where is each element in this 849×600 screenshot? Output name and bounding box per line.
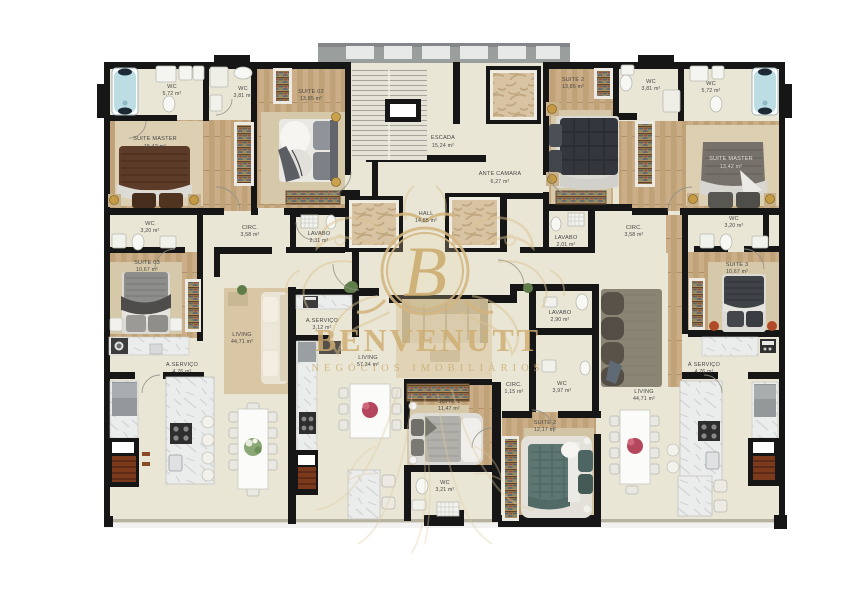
svg-text:NEGÓCIOS IMOBILIÁRIOS: NEGÓCIOS IMOBILIÁRIOS: [311, 362, 544, 374]
svg-text:LAVABO: LAVABO: [549, 310, 572, 316]
svg-text:SUITE 2: SUITE 2: [562, 77, 585, 83]
svg-text:WC: WC: [729, 216, 739, 222]
svg-text:3,97 m²: 3,97 m²: [553, 388, 572, 394]
svg-text:LIVING: LIVING: [358, 355, 378, 361]
svg-text:WC: WC: [167, 84, 177, 90]
svg-text:4,76 m²: 4,76 m²: [173, 369, 192, 375]
svg-text:ANTE CAMARA: ANTE CAMARA: [479, 171, 522, 177]
svg-text:14,85 m²: 14,85 m²: [415, 218, 437, 224]
svg-text:WC: WC: [706, 81, 716, 87]
svg-text:WC: WC: [145, 221, 155, 227]
svg-text:LAVABO: LAVABO: [308, 231, 331, 237]
svg-text:A.SERVIÇO: A.SERVIÇO: [306, 318, 339, 324]
svg-text:4,76 m²: 4,76 m²: [695, 369, 714, 375]
svg-text:CIRC.: CIRC.: [626, 225, 642, 231]
svg-text:B: B: [403, 232, 447, 312]
svg-text:5,72 m²: 5,72 m²: [163, 91, 182, 97]
svg-text:13,85 m²: 13,85 m²: [562, 84, 584, 90]
svg-text:15,24 m²: 15,24 m²: [432, 143, 454, 149]
svg-text:CIRC.: CIRC.: [242, 225, 258, 231]
svg-text:57,34 m²: 57,34 m²: [357, 362, 379, 368]
svg-text:SUITE 2: SUITE 2: [534, 420, 557, 426]
svg-text:3,12 m²: 3,12 m²: [313, 325, 332, 331]
svg-text:WC: WC: [646, 79, 656, 85]
svg-text:3,58 m²: 3,58 m²: [241, 232, 260, 238]
svg-text:1,15 m²: 1,15 m²: [505, 389, 524, 395]
svg-text:WC: WC: [557, 381, 567, 387]
svg-text:2,31 m²: 2,31 m²: [310, 238, 329, 244]
svg-text:WC: WC: [238, 86, 248, 92]
svg-text:2,90 m²: 2,90 m²: [551, 317, 570, 323]
svg-text:SUITE 03: SUITE 03: [134, 260, 160, 266]
svg-text:LIVING: LIVING: [232, 332, 252, 338]
svg-text:A.SERVIÇO: A.SERVIÇO: [166, 362, 199, 368]
svg-text:3,58 m²: 3,58 m²: [625, 232, 644, 238]
svg-text:SUITE MASTER: SUITE MASTER: [133, 136, 177, 142]
svg-text:10,67 m²: 10,67 m²: [136, 267, 158, 273]
svg-text:SUITE 1: SUITE 1: [438, 399, 461, 405]
svg-text:BENVENUTT: BENVENUTT: [315, 322, 541, 358]
svg-text:SUITE MASTER: SUITE MASTER: [709, 156, 753, 162]
svg-text:13,85 m²: 13,85 m²: [300, 96, 322, 102]
svg-text:LIVING: LIVING: [634, 389, 654, 395]
svg-text:3,20 m²: 3,20 m²: [141, 228, 160, 234]
svg-text:3,81 m²: 3,81 m²: [642, 86, 661, 92]
svg-text:SUITE 02: SUITE 02: [298, 89, 324, 95]
svg-text:2,01 m²: 2,01 m²: [557, 242, 576, 248]
svg-text:ESCADA: ESCADA: [431, 135, 455, 141]
svg-text:3,21 m²: 3,21 m²: [436, 487, 455, 493]
svg-text:11,47 m²: 11,47 m²: [438, 406, 460, 412]
svg-text:SUITE 3: SUITE 3: [726, 262, 749, 268]
svg-text:LAVABO: LAVABO: [555, 235, 578, 241]
svg-text:44,71 m²: 44,71 m²: [633, 396, 655, 402]
svg-text:6,27 m²: 6,27 m²: [491, 179, 510, 185]
svg-text:44,71 m²: 44,71 m²: [231, 339, 253, 345]
svg-text:13,42 m²: 13,42 m²: [720, 164, 742, 170]
svg-text:HALL: HALL: [419, 211, 434, 217]
svg-text:3,20 m²: 3,20 m²: [725, 223, 744, 229]
svg-text:3,81 m²: 3,81 m²: [234, 93, 253, 99]
svg-text:CIRC.: CIRC.: [506, 382, 522, 388]
svg-text:5,72 m²: 5,72 m²: [702, 88, 721, 94]
svg-text:WC: WC: [440, 480, 450, 486]
svg-text:10,67 m²: 10,67 m²: [726, 269, 748, 275]
svg-text:15,42 m²: 15,42 m²: [144, 144, 166, 150]
svg-text:12,17 m²: 12,17 m²: [534, 427, 556, 433]
svg-text:Á SERVIÇO: Á SERVIÇO: [688, 361, 721, 368]
